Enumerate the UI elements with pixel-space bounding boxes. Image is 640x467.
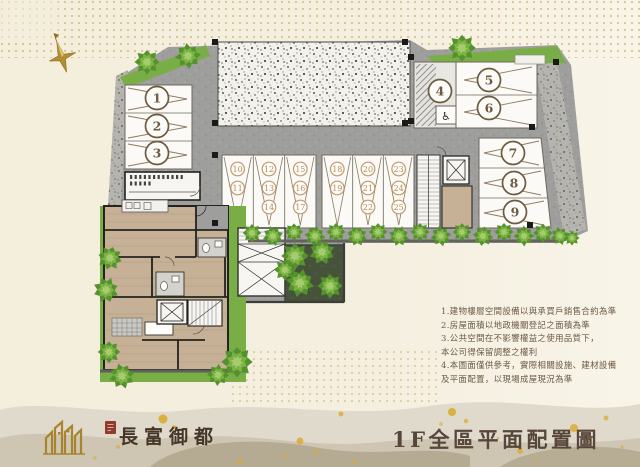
patio-paving <box>112 318 142 336</box>
outdoor-stair <box>417 155 440 228</box>
brand-name: 長富御都 <box>119 422 219 449</box>
parking-space-number: 11 <box>233 184 243 193</box>
note-line: 2.房屋面積以地政機關登記之面積為準 <box>441 319 626 333</box>
parking-space-number: 17 <box>295 203 305 212</box>
parking-space-number: 2 <box>153 119 162 134</box>
parking-space-number: 21 <box>363 184 373 193</box>
parking-space-number: 6 <box>485 101 494 116</box>
note-line: 4.本圖面僅供參考，實際相關設施、建材設備 <box>441 359 626 373</box>
disclaimer-notes: 1.建物樓層空間設備以與承買戶銷售合約為準 2.房屋面積以地政機關登記之面積為準… <box>441 305 626 387</box>
brand-seal <box>105 421 116 434</box>
parking-space-number: 9 <box>511 205 520 220</box>
parking-space-number: 14 <box>264 203 274 212</box>
parking-space-number: 7 <box>509 146 518 161</box>
parking-space-number: 4 <box>436 84 445 99</box>
parking-space-number: 8 <box>510 176 519 191</box>
parking-space-number: 10 <box>233 165 243 174</box>
parking-space-number: 12 <box>264 165 274 174</box>
parking-space-number: 23 <box>394 165 404 174</box>
parking-space-number: 24 <box>394 184 404 193</box>
parking-space-number: 1 <box>153 91 162 106</box>
note-line: 及平面配置，以現場成屋現況為準 <box>441 373 626 387</box>
note-line: 1.建物樓層空間設備以與承買戶銷售合約為準 <box>441 305 626 319</box>
gold-dot-band-mid <box>232 346 438 404</box>
parking-space-number: 15 <box>295 165 305 174</box>
interior-elevator <box>157 300 187 324</box>
site-plan-graphic: ♿ <box>0 0 640 467</box>
parking-space-number: 20 <box>363 165 373 174</box>
page-title: 1F全區平面配置圖 <box>392 424 600 454</box>
parking-stalls-5-6 <box>456 55 545 128</box>
parking-space-number: 13 <box>264 184 274 193</box>
wheelchair-icon: ♿ <box>441 110 451 123</box>
parking-space-number: 19 <box>332 184 342 193</box>
parking-space-number: 5 <box>485 73 494 88</box>
note-line: 本公司得保留調整之權利 <box>441 346 626 360</box>
kitchen-counter <box>122 200 168 212</box>
parking-space-number: 16 <box>295 184 305 193</box>
parking-space-number: 3 <box>153 146 162 161</box>
interior-stairs <box>188 300 222 326</box>
entry-drive <box>196 206 228 230</box>
gravel-court <box>218 42 410 126</box>
parking-space-number: 25 <box>394 203 404 212</box>
note-line: 3.公共空間在不影響權益之使用品質下， <box>441 332 626 346</box>
floor-plan-page: ♿ <box>0 0 640 467</box>
parking-space-number: 22 <box>363 203 373 212</box>
parking-space-number: 18 <box>332 165 342 174</box>
